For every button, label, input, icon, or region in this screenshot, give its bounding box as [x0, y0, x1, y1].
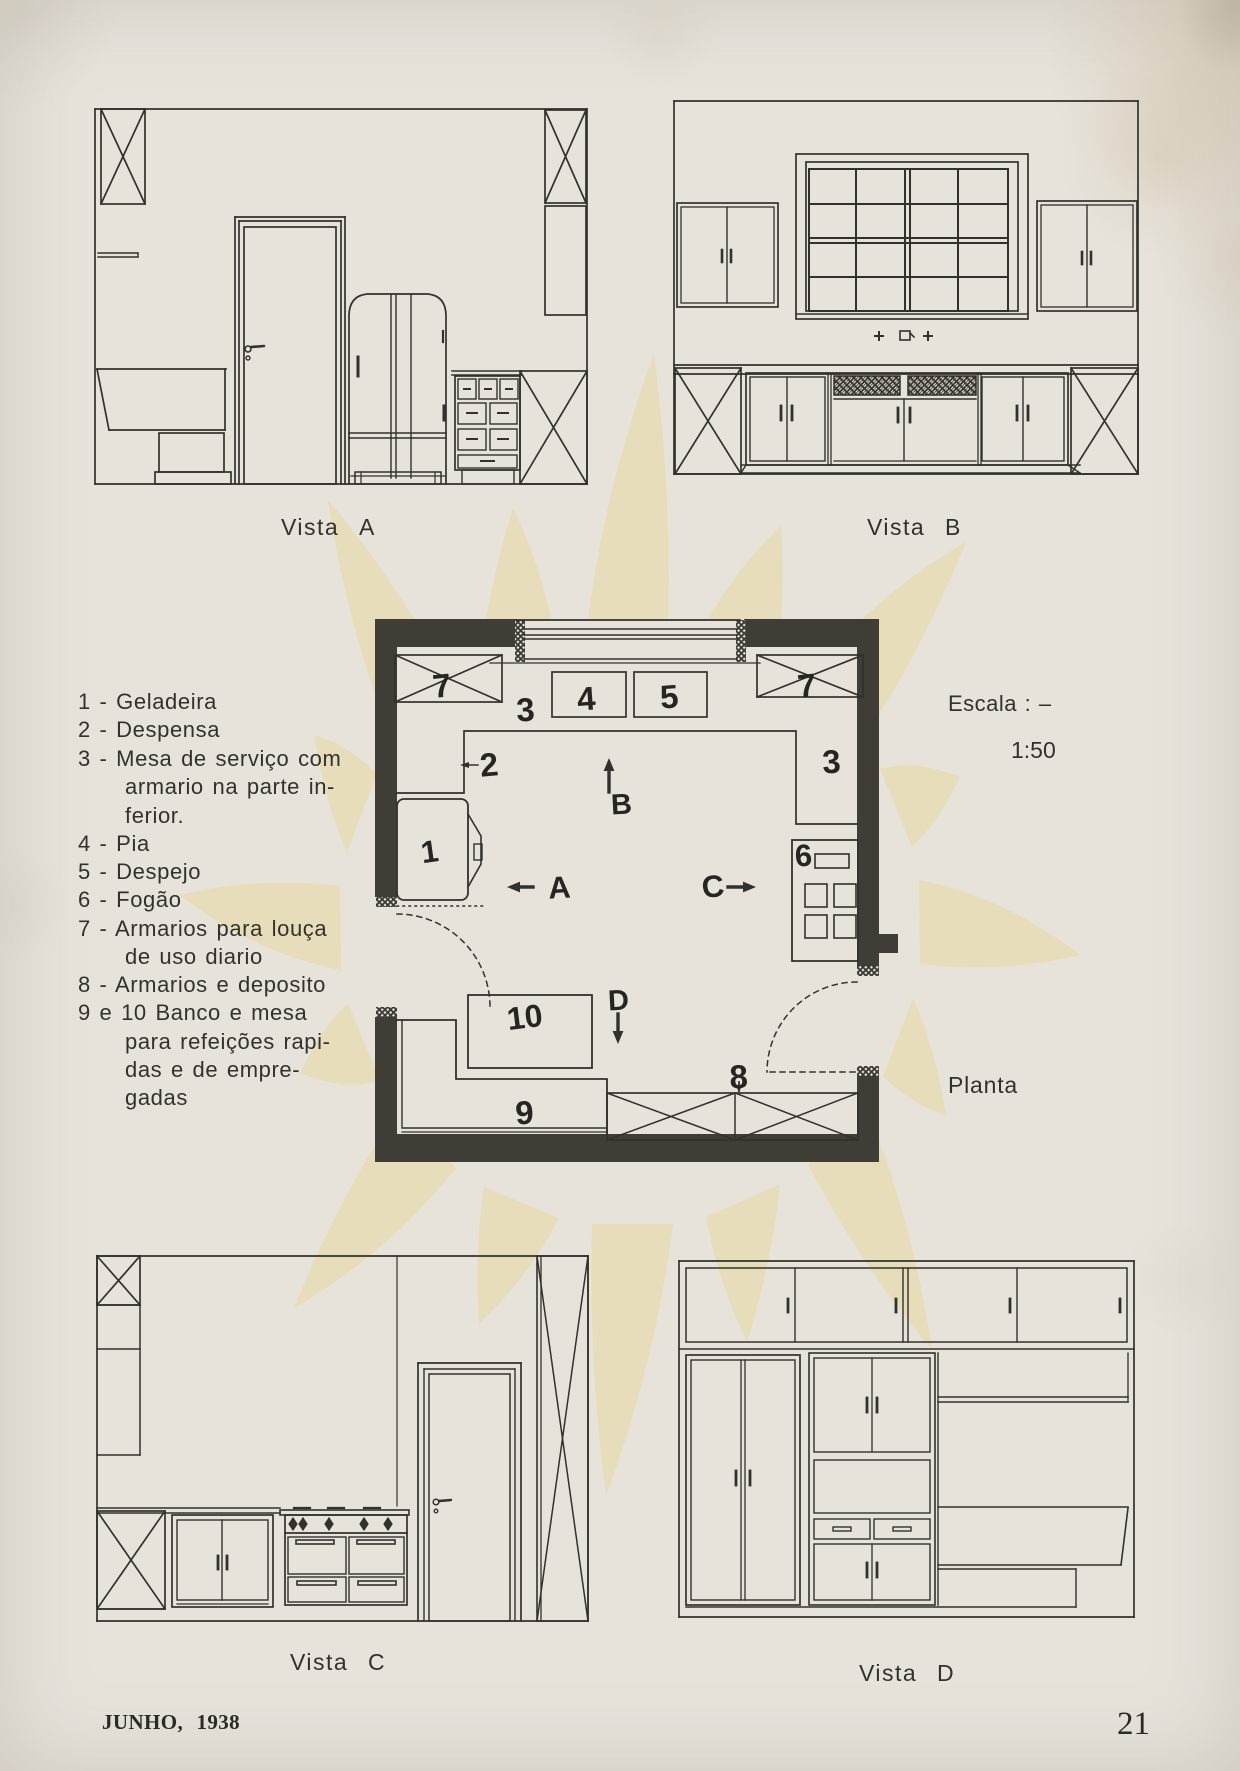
- svg-text:3: 3: [821, 743, 841, 781]
- svg-text:3: 3: [515, 691, 535, 729]
- svg-text:5: 5: [659, 677, 680, 715]
- svg-text:2: 2: [478, 745, 500, 783]
- svg-text:D: D: [607, 984, 630, 1017]
- svg-text:7: 7: [796, 666, 818, 705]
- svg-text:9: 9: [514, 1094, 534, 1132]
- svg-text:8: 8: [729, 1058, 749, 1096]
- svg-text:7: 7: [431, 666, 453, 705]
- svg-text:B: B: [610, 788, 633, 821]
- svg-text:10: 10: [505, 997, 545, 1037]
- svg-text:6: 6: [794, 838, 813, 874]
- svg-text:C: C: [700, 868, 726, 905]
- svg-text:A: A: [547, 869, 571, 905]
- svg-text:4: 4: [576, 679, 598, 717]
